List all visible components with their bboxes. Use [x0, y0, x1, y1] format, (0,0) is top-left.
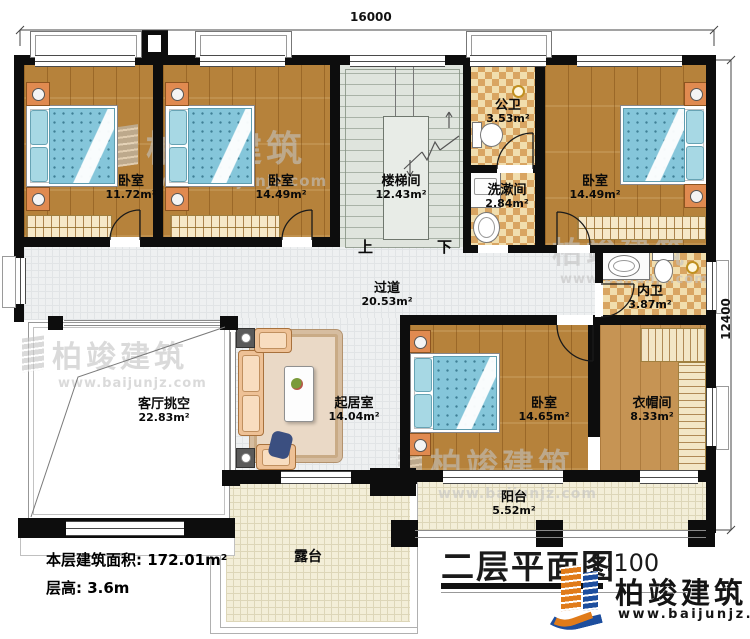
brand-logo: 柏竣建筑 www.baijunjz.com — [533, 560, 748, 636]
room-label-ensuite-bath: 内卫3.87m² — [628, 285, 671, 311]
logo-building-blue — [583, 571, 598, 611]
stair-down-label: 下 — [437, 236, 452, 257]
room-label-living-void: 客厅挑空22.83m² — [138, 398, 190, 424]
room-label-cloakroom: 衣帽间8.33m² — [630, 397, 673, 423]
room-label-balcony: 阳台5.52m² — [492, 491, 535, 517]
stair-up-label: 上 — [358, 236, 373, 257]
void-diagonal — [31, 327, 225, 517]
linework-overlay — [0, 0, 750, 639]
dimension-lines — [16, 26, 735, 534]
room-label-bedroom-top-mid: 卧室14.49m² — [255, 175, 306, 201]
room-label-bedroom-top-left: 卧室11.72m² — [105, 175, 156, 201]
room-label-terrace: 露台 — [294, 550, 322, 565]
dimension-right: 12400 — [719, 295, 733, 343]
room-label-public-bath: 公卫3.53m² — [486, 99, 529, 125]
floor-area-text: 本层建筑面积: 172.01m² — [46, 549, 227, 570]
room-label-bedroom-bottom: 卧室14.65m² — [518, 397, 569, 423]
room-label-stairwell: 楼梯间12.43m² — [375, 175, 426, 201]
brand-name: 柏竣建筑 — [615, 570, 747, 612]
brand-url: www.baijunjz.com — [618, 607, 750, 622]
stair-break-line — [404, 112, 459, 176]
floor-height-text: 层高: 3.6m — [46, 577, 129, 598]
floor-plan: 柏竣建筑 www.baijunjz.com 柏竣建筑 www.baijunjz.… — [0, 0, 750, 639]
logo-building-orange — [561, 565, 581, 611]
room-label-corridor: 过道20.53m² — [361, 282, 412, 308]
dimension-top: 16000 — [347, 10, 395, 24]
room-label-bedroom-top-right: 卧室14.49m² — [569, 175, 620, 201]
room-label-family-room: 起居室14.04m² — [328, 397, 379, 423]
room-label-washroom: 洗漱间2.84m² — [485, 184, 528, 210]
